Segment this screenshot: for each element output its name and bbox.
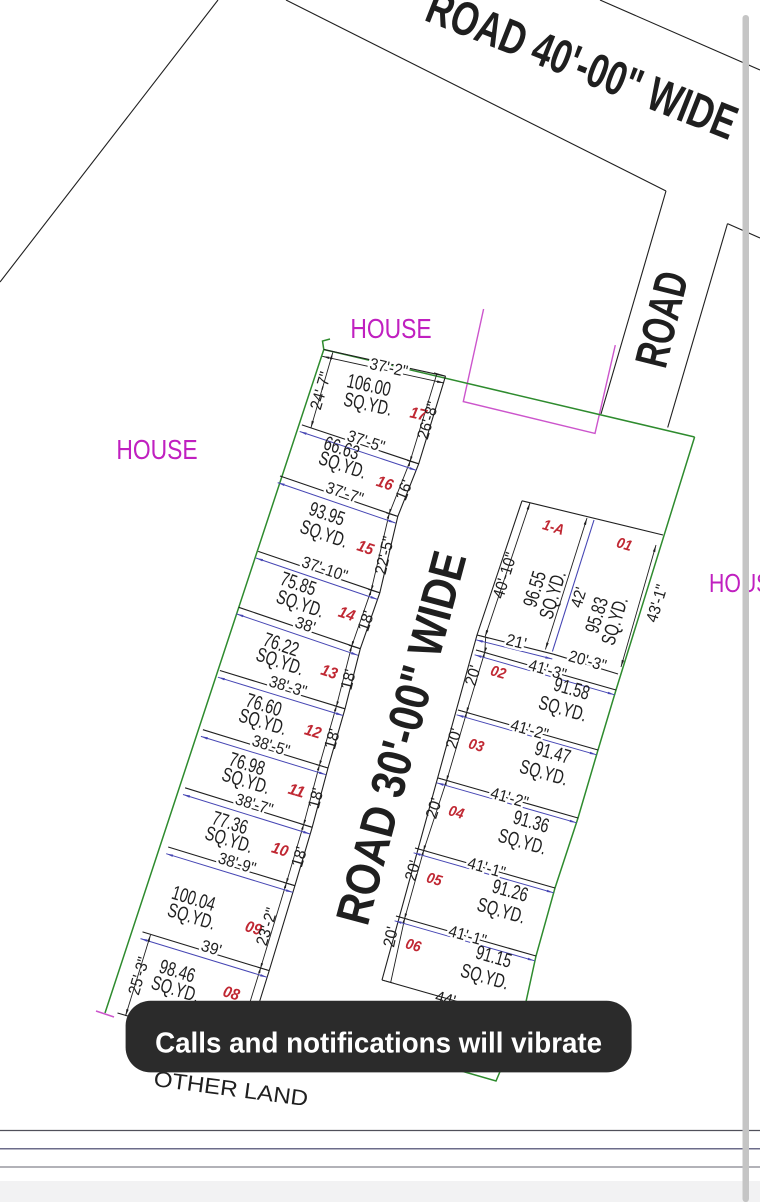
svg-text:Calls and notifications will v: Calls and notifications will vibrate <box>155 1028 602 1060</box>
svg-text:HOUSE: HOUSE <box>116 434 197 465</box>
svg-text:HOUSE: HOUSE <box>350 313 431 344</box>
svg-text:HOUSE: HOUSE <box>709 568 760 598</box>
